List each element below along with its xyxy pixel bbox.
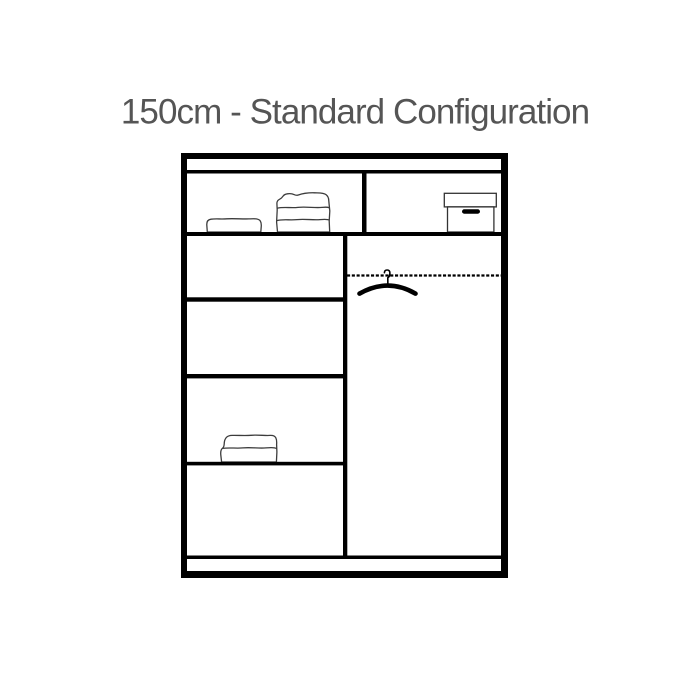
svg-text:150cm - Standard Configuration: 150cm - Standard Configuration (121, 93, 589, 132)
